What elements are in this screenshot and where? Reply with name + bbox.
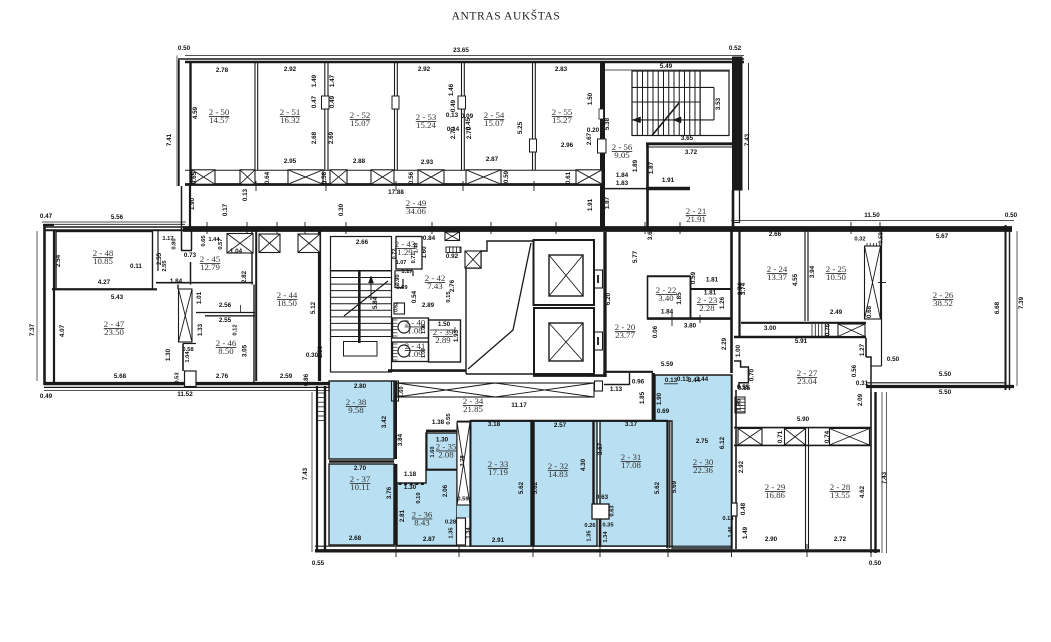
svg-text:0.84: 0.84 — [423, 235, 436, 242]
svg-text:4.55: 4.55 — [792, 273, 799, 286]
svg-text:1.84: 1.84 — [661, 309, 674, 316]
svg-text:10.11: 10.11 — [350, 482, 369, 492]
svg-text:0.92: 0.92 — [446, 253, 459, 260]
svg-text:3.69: 3.69 — [647, 227, 654, 240]
svg-text:2.29: 2.29 — [721, 337, 728, 350]
svg-text:3.00: 3.00 — [764, 325, 777, 332]
svg-text:7.43: 7.43 — [427, 281, 443, 291]
svg-text:0.15: 0.15 — [446, 291, 452, 303]
svg-text:7.43: 7.43 — [881, 471, 888, 484]
svg-text:5.62: 5.62 — [532, 481, 539, 494]
svg-text:2.67: 2.67 — [586, 132, 593, 145]
svg-text:1.04: 1.04 — [185, 351, 191, 363]
svg-text:0.54: 0.54 — [411, 290, 418, 303]
svg-text:2.78: 2.78 — [216, 67, 229, 74]
svg-text:0.55: 0.55 — [879, 232, 885, 244]
svg-text:4.27: 4.27 — [98, 279, 111, 286]
svg-text:1.34: 1.34 — [466, 527, 472, 539]
svg-text:3.76: 3.76 — [386, 486, 393, 499]
svg-text:5.50: 5.50 — [939, 371, 952, 378]
svg-text:0.47: 0.47 — [311, 95, 318, 108]
svg-text:5.50: 5.50 — [939, 389, 952, 396]
svg-text:1.87: 1.87 — [604, 196, 611, 209]
svg-text:0.06: 0.06 — [652, 325, 659, 338]
svg-text:2.81: 2.81 — [399, 509, 406, 522]
svg-text:0.58: 0.58 — [321, 171, 328, 184]
svg-text:1.18: 1.18 — [404, 471, 417, 478]
svg-text:5.56: 5.56 — [111, 214, 124, 221]
svg-text:5.43: 5.43 — [111, 294, 124, 301]
svg-text:2.66: 2.66 — [356, 239, 369, 246]
svg-text:0.63: 0.63 — [610, 505, 616, 517]
svg-text:1.46: 1.46 — [728, 526, 734, 538]
svg-text:5.68: 5.68 — [114, 373, 127, 380]
svg-text:1.85: 1.85 — [676, 292, 683, 305]
svg-text:1.04: 1.04 — [230, 248, 243, 255]
svg-text:2.75: 2.75 — [696, 438, 709, 445]
svg-text:5.49: 5.49 — [660, 63, 673, 70]
svg-text:1.81: 1.81 — [704, 290, 717, 297]
svg-text:2.87: 2.87 — [423, 536, 436, 543]
svg-text:3.65: 3.65 — [681, 135, 694, 142]
svg-text:1.60: 1.60 — [421, 246, 428, 259]
svg-text:0.10: 0.10 — [416, 492, 422, 503]
svg-text:1.46: 1.46 — [448, 83, 455, 96]
svg-text:2.28: 2.28 — [699, 303, 715, 313]
svg-text:0.32: 0.32 — [854, 237, 865, 243]
svg-text:7.43: 7.43 — [744, 133, 751, 146]
svg-text:1.91: 1.91 — [587, 198, 594, 211]
svg-text:3.80: 3.80 — [684, 323, 697, 330]
svg-text:21.85: 21.85 — [463, 404, 483, 414]
svg-text:2.72: 2.72 — [834, 536, 847, 543]
svg-text:14.83: 14.83 — [548, 469, 568, 479]
svg-text:5.25: 5.25 — [517, 121, 524, 134]
svg-text:1.30: 1.30 — [165, 348, 172, 361]
svg-text:1.49: 1.49 — [742, 526, 749, 539]
svg-text:38.52: 38.52 — [933, 298, 953, 308]
svg-text:0.49: 0.49 — [450, 99, 457, 112]
svg-text:15.27: 15.27 — [552, 115, 572, 125]
svg-text:4.07: 4.07 — [59, 324, 66, 337]
svg-text:1.26: 1.26 — [719, 296, 726, 309]
svg-text:1.30: 1.30 — [317, 345, 324, 358]
svg-text:1.01: 1.01 — [196, 291, 203, 304]
svg-text:1.07: 1.07 — [421, 348, 427, 358]
svg-text:3.18: 3.18 — [488, 421, 501, 428]
svg-text:2.69: 2.69 — [328, 131, 335, 144]
svg-text:23.65: 23.65 — [453, 47, 469, 54]
svg-text:2.08: 2.08 — [438, 450, 454, 460]
svg-text:10.85: 10.85 — [93, 256, 113, 266]
svg-text:13.55: 13.55 — [830, 490, 850, 500]
svg-text:0.35: 0.35 — [602, 523, 614, 529]
svg-text:17.88: 17.88 — [388, 189, 404, 196]
svg-text:0.56: 0.56 — [408, 171, 415, 184]
svg-text:0.73: 0.73 — [184, 252, 197, 259]
svg-text:2.92: 2.92 — [284, 66, 297, 73]
svg-text:0.31: 0.31 — [856, 380, 869, 387]
svg-text:1.81: 1.81 — [706, 277, 719, 284]
svg-text:2.83: 2.83 — [555, 66, 568, 73]
svg-text:22.36: 22.36 — [693, 465, 713, 475]
svg-text:10.50: 10.50 — [826, 272, 846, 282]
svg-text:5.77: 5.77 — [632, 250, 639, 263]
svg-text:5.90: 5.90 — [797, 416, 810, 423]
svg-text:2.80: 2.80 — [354, 383, 367, 390]
svg-text:0.59: 0.59 — [690, 271, 697, 284]
svg-text:0.55: 0.55 — [446, 413, 452, 425]
svg-text:1.34: 1.34 — [603, 531, 609, 543]
svg-text:3.53: 3.53 — [715, 97, 722, 110]
svg-text:12.79: 12.79 — [200, 262, 220, 272]
svg-text:1.84: 1.84 — [616, 172, 629, 179]
svg-text:1.60: 1.60 — [430, 446, 436, 457]
svg-text:0.57: 0.57 — [218, 238, 224, 249]
svg-text:15.24: 15.24 — [416, 120, 436, 130]
svg-text:0.56: 0.56 — [851, 364, 858, 377]
svg-text:0.59: 0.59 — [457, 497, 469, 503]
svg-text:3.67: 3.67 — [597, 442, 604, 455]
svg-text:0.12: 0.12 — [233, 324, 239, 335]
svg-text:2.95: 2.95 — [284, 158, 297, 165]
svg-text:1.35: 1.35 — [587, 530, 593, 542]
svg-text:1.50: 1.50 — [438, 321, 451, 328]
svg-text:5.38: 5.38 — [604, 117, 611, 130]
svg-text:1.06: 1.06 — [421, 324, 427, 334]
svg-text:0.76: 0.76 — [825, 323, 832, 336]
svg-text:1.49: 1.49 — [311, 74, 318, 87]
svg-text:1.83: 1.83 — [616, 180, 629, 187]
svg-text:0.68: 0.68 — [866, 305, 873, 318]
svg-text:0.49: 0.49 — [40, 393, 53, 400]
svg-text:1.93: 1.93 — [453, 329, 460, 342]
svg-text:3.94: 3.94 — [809, 265, 816, 278]
svg-text:0.90: 0.90 — [395, 274, 401, 285]
svg-text:18.50: 18.50 — [277, 298, 297, 308]
svg-text:2.68: 2.68 — [349, 535, 362, 542]
svg-text:17.19: 17.19 — [488, 467, 508, 477]
svg-text:0.53: 0.53 — [175, 372, 181, 384]
svg-text:2.90: 2.90 — [765, 536, 778, 543]
svg-text:1.84: 1.84 — [170, 278, 183, 285]
svg-text:1.07: 1.07 — [396, 260, 407, 266]
svg-text:1.00: 1.00 — [735, 344, 742, 357]
svg-text:13.37: 13.37 — [767, 272, 787, 282]
svg-text:1.38: 1.38 — [432, 419, 445, 426]
svg-text:16.32: 16.32 — [280, 115, 300, 125]
svg-text:2.89: 2.89 — [422, 302, 435, 309]
svg-text:0.86: 0.86 — [303, 373, 310, 386]
svg-text:23.50: 23.50 — [104, 327, 124, 337]
svg-text:6.12: 6.12 — [719, 436, 726, 449]
svg-text:3.40: 3.40 — [658, 293, 674, 303]
svg-text:2.54: 2.54 — [55, 254, 62, 267]
svg-text:11.50: 11.50 — [864, 212, 880, 219]
svg-text:2.82: 2.82 — [241, 270, 248, 283]
svg-text:0.69: 0.69 — [657, 408, 670, 415]
svg-text:17.08: 17.08 — [621, 460, 641, 470]
svg-text:1.47: 1.47 — [329, 74, 336, 87]
svg-text:3.74: 3.74 — [737, 282, 744, 295]
svg-text:2.70: 2.70 — [466, 126, 473, 139]
svg-text:1.89: 1.89 — [632, 159, 639, 172]
svg-text:16.86: 16.86 — [765, 490, 785, 500]
svg-text:9.05: 9.05 — [614, 150, 630, 160]
svg-text:2.09: 2.09 — [857, 393, 864, 406]
svg-text:0.72: 0.72 — [392, 249, 398, 260]
svg-text:11.17: 11.17 — [511, 402, 527, 409]
svg-text:1.13: 1.13 — [610, 386, 623, 393]
svg-text:3.72: 3.72 — [685, 149, 698, 156]
svg-text:2.56: 2.56 — [219, 302, 232, 309]
svg-text:0.71: 0.71 — [777, 430, 784, 443]
svg-text:6.68: 6.68 — [994, 301, 1001, 314]
svg-text:0.55: 0.55 — [312, 560, 325, 567]
svg-text:2.89: 2.89 — [435, 335, 451, 345]
svg-text:2.59: 2.59 — [280, 373, 293, 380]
svg-text:2.66: 2.66 — [769, 231, 782, 238]
svg-text:1.95: 1.95 — [736, 398, 743, 411]
svg-text:0.59: 0.59 — [503, 170, 510, 183]
svg-text:0.55: 0.55 — [737, 384, 750, 391]
svg-text:2.88: 2.88 — [353, 158, 366, 165]
svg-text:7.37: 7.37 — [29, 323, 36, 336]
svg-text:7.39: 7.39 — [1018, 296, 1025, 309]
svg-text:0.61: 0.61 — [565, 171, 572, 184]
svg-text:2.55: 2.55 — [219, 317, 232, 324]
svg-text:3.17: 3.17 — [625, 421, 638, 428]
svg-text:2.49: 2.49 — [830, 309, 843, 316]
svg-text:34.06: 34.06 — [406, 206, 426, 216]
svg-text:0.49: 0.49 — [329, 95, 336, 108]
svg-text:0.62: 0.62 — [394, 302, 400, 312]
svg-text:2.70: 2.70 — [354, 465, 367, 472]
svg-text:2.87: 2.87 — [486, 156, 499, 163]
svg-text:0.65: 0.65 — [201, 235, 207, 247]
svg-text:8.43: 8.43 — [414, 518, 430, 528]
svg-text:0.13: 0.13 — [665, 377, 678, 384]
svg-text:14.57: 14.57 — [209, 115, 229, 125]
svg-text:3.42: 3.42 — [381, 415, 388, 428]
svg-text:2.68: 2.68 — [311, 131, 318, 144]
svg-text:0.30: 0.30 — [338, 203, 345, 216]
svg-text:0.50: 0.50 — [1005, 212, 1018, 219]
svg-text:21.91: 21.91 — [686, 214, 706, 224]
svg-text:1.50: 1.50 — [587, 92, 594, 105]
svg-text:4.62: 4.62 — [859, 485, 866, 498]
svg-text:0.64: 0.64 — [264, 171, 271, 184]
svg-text:5.69: 5.69 — [671, 480, 678, 493]
svg-text:1.33: 1.33 — [197, 323, 204, 336]
svg-text:2.55: 2.55 — [162, 260, 168, 272]
svg-text:0.50: 0.50 — [887, 356, 900, 363]
svg-text:0.47: 0.47 — [40, 213, 53, 220]
svg-text:6.20: 6.20 — [605, 292, 612, 305]
svg-text:15.07: 15.07 — [484, 118, 504, 128]
svg-text:0.74: 0.74 — [824, 430, 831, 443]
svg-text:2.76: 2.76 — [449, 279, 456, 292]
svg-text:2.92: 2.92 — [738, 460, 745, 473]
svg-text:5.62: 5.62 — [518, 481, 525, 494]
svg-text:2.57: 2.57 — [554, 422, 567, 429]
svg-text:5.91: 5.91 — [795, 338, 808, 345]
svg-text:1.60: 1.60 — [399, 386, 405, 397]
svg-text:0.65: 0.65 — [191, 171, 198, 184]
svg-text:1.91: 1.91 — [662, 177, 675, 184]
svg-text:0.48: 0.48 — [740, 502, 747, 515]
svg-text:3.84: 3.84 — [397, 433, 404, 446]
svg-text:11.52: 11.52 — [177, 391, 193, 398]
svg-text:1.17: 1.17 — [401, 269, 412, 275]
svg-text:5.84: 5.84 — [372, 296, 379, 309]
svg-text:0.26: 0.26 — [584, 523, 596, 529]
svg-text:5.59: 5.59 — [661, 361, 674, 368]
svg-text:4.59: 4.59 — [192, 106, 199, 119]
svg-text:ANTRAS AUKŠTAS: ANTRAS AUKŠTAS — [452, 9, 561, 23]
svg-text:0.28: 0.28 — [445, 520, 457, 526]
svg-text:1.27: 1.27 — [859, 343, 866, 356]
svg-text:0.13: 0.13 — [722, 516, 734, 522]
svg-text:2.06: 2.06 — [442, 484, 449, 497]
svg-text:0.11: 0.11 — [130, 263, 142, 270]
svg-text:4.30: 4.30 — [580, 458, 587, 471]
svg-text:0.63: 0.63 — [596, 494, 609, 501]
svg-text:1.30: 1.30 — [404, 484, 417, 491]
svg-text:8.50: 8.50 — [218, 346, 234, 356]
svg-text:1.35: 1.35 — [449, 527, 455, 539]
svg-text:0.17: 0.17 — [222, 203, 229, 216]
svg-text:7.43: 7.43 — [302, 467, 309, 480]
svg-text:1.30: 1.30 — [436, 437, 449, 444]
svg-text:3.78: 3.78 — [460, 455, 466, 467]
svg-text:1.87: 1.87 — [648, 161, 655, 174]
svg-text:23.77: 23.77 — [615, 330, 635, 340]
svg-text:7.41: 7.41 — [166, 133, 173, 146]
svg-text:23.04: 23.04 — [797, 376, 817, 386]
svg-text:2.70: 2.70 — [450, 126, 457, 139]
svg-text:0.80: 0.80 — [172, 238, 178, 249]
svg-text:2.91: 2.91 — [492, 537, 505, 544]
svg-text:0.52: 0.52 — [729, 45, 742, 52]
svg-text:5.12: 5.12 — [310, 301, 317, 314]
svg-text:3.44: 3.44 — [688, 377, 701, 384]
svg-text:1.90: 1.90 — [656, 392, 663, 405]
svg-text:0.13: 0.13 — [242, 188, 249, 201]
svg-text:3.05: 3.05 — [241, 344, 248, 357]
svg-text:1.90: 1.90 — [189, 197, 196, 210]
svg-text:0.70: 0.70 — [749, 368, 756, 381]
svg-text:9.58: 9.58 — [348, 405, 364, 415]
svg-text:0.69: 0.69 — [396, 285, 408, 291]
svg-text:2.76: 2.76 — [216, 373, 229, 380]
svg-text:15.07: 15.07 — [350, 118, 370, 128]
svg-text:0.50: 0.50 — [869, 560, 882, 567]
svg-text:1.85: 1.85 — [639, 391, 646, 404]
svg-text:5.67: 5.67 — [936, 233, 949, 240]
svg-text:0.96: 0.96 — [632, 379, 645, 386]
svg-text:2.93: 2.93 — [421, 159, 434, 166]
svg-text:1.48: 1.48 — [414, 243, 420, 254]
svg-text:5.62: 5.62 — [654, 481, 661, 494]
svg-text:2.96: 2.96 — [561, 142, 574, 149]
svg-text:2.92: 2.92 — [418, 66, 431, 73]
svg-text:0.50: 0.50 — [178, 45, 191, 52]
